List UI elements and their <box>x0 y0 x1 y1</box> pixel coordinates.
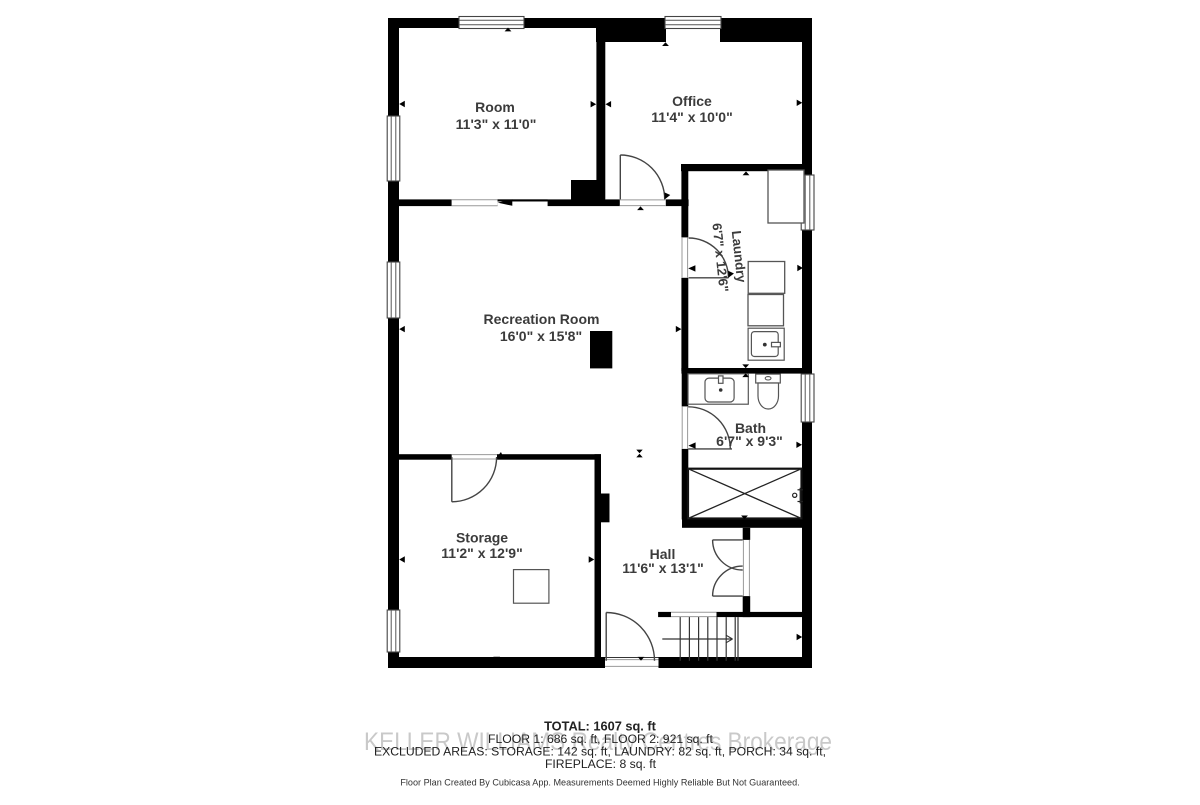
svg-text:6'7" x 9'3": 6'7" x 9'3" <box>716 433 783 449</box>
svg-text:Office: Office <box>672 93 712 109</box>
svg-text:Storage: Storage <box>456 530 508 546</box>
svg-text:Recreation Room: Recreation Room <box>484 311 600 327</box>
svg-text:16'0" x 15'8": 16'0" x 15'8" <box>500 328 582 344</box>
svg-text:11'3" x 11'0": 11'3" x 11'0" <box>456 116 537 132</box>
svg-text:Floor Plan Created By Cubicasa: Floor Plan Created By Cubicasa App. Meas… <box>400 778 799 788</box>
svg-text:FIREPLACE: 8 sq. ft: FIREPLACE: 8 sq. ft <box>545 757 657 771</box>
svg-text:Room: Room <box>475 99 515 115</box>
svg-text:11'2" x 12'9": 11'2" x 12'9" <box>441 545 522 561</box>
svg-text:11'6" x 13'1": 11'6" x 13'1" <box>622 560 703 576</box>
svg-text:11'4" x 10'0": 11'4" x 10'0" <box>651 109 732 125</box>
